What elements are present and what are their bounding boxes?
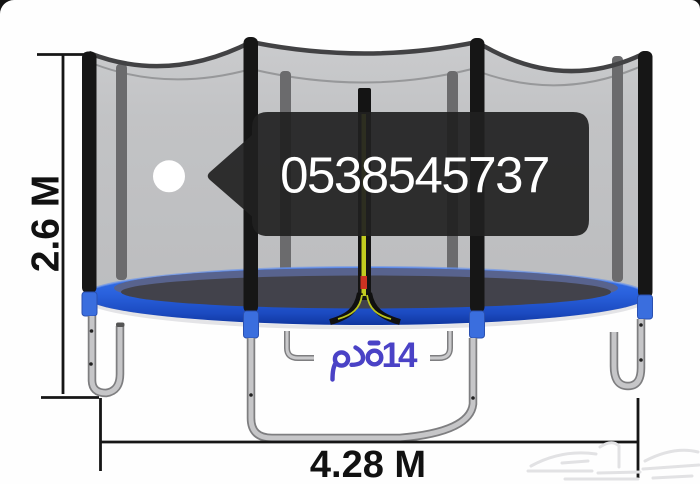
svg-text:0538545737: 0538545737 bbox=[280, 147, 549, 204]
svg-text:2.6 M: 2.6 M bbox=[25, 175, 68, 273]
svg-text:14: 14 bbox=[382, 336, 418, 375]
svg-text:4.28 M: 4.28 M bbox=[310, 444, 426, 484]
